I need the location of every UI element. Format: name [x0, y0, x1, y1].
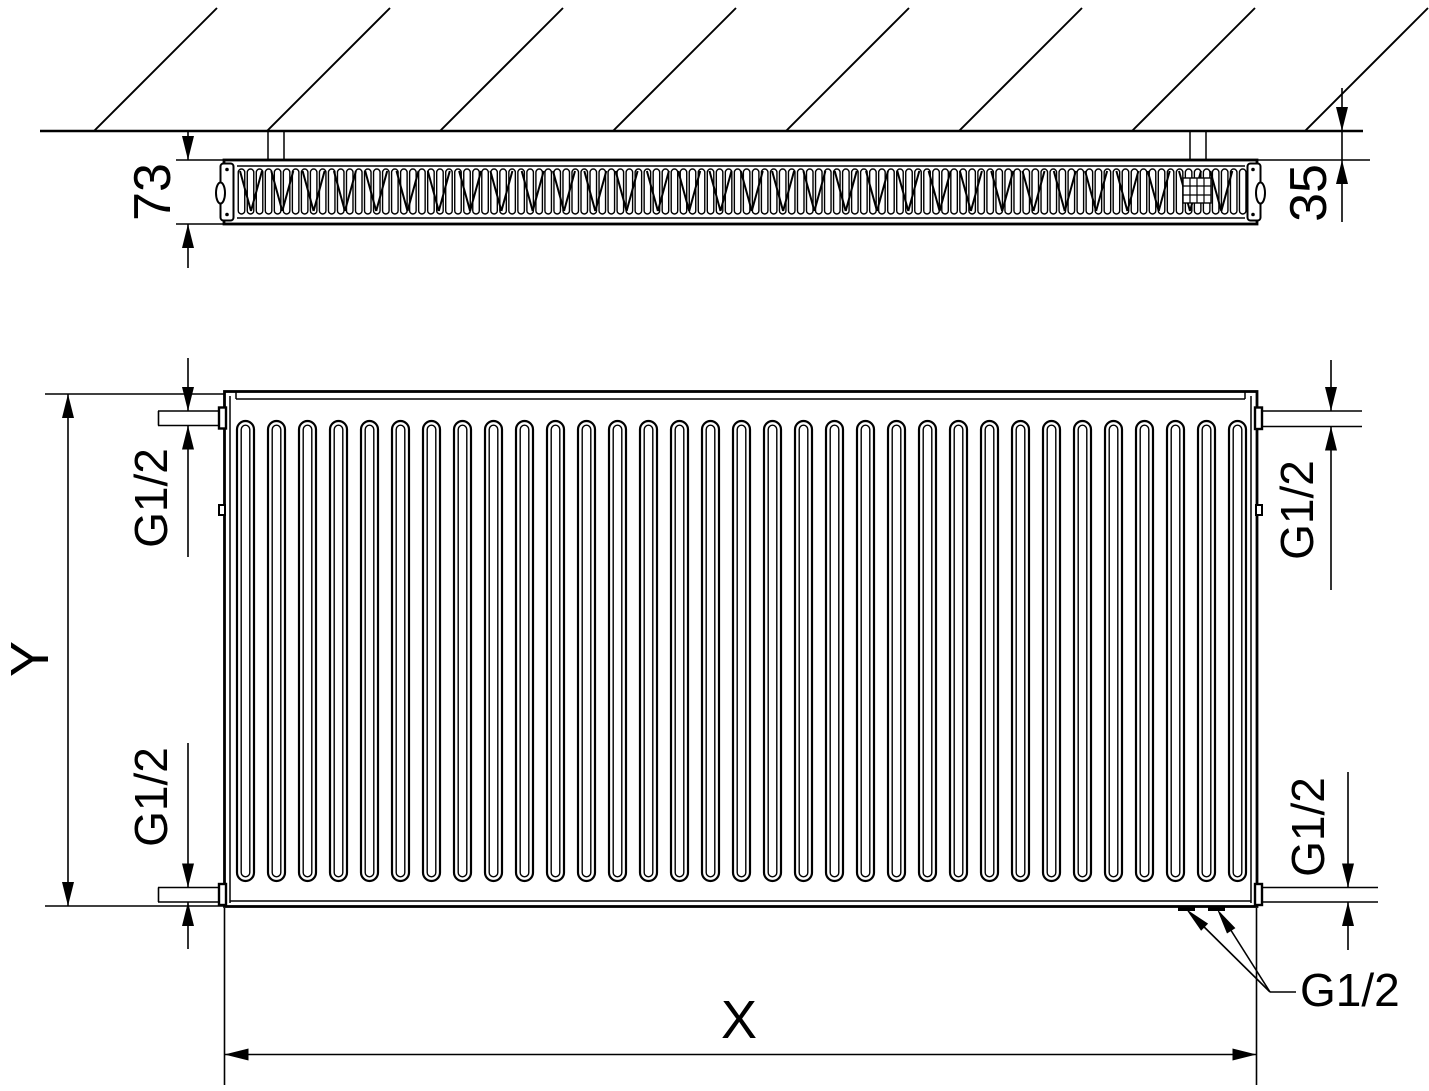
front-fin-slot [795, 421, 812, 881]
wall-bracket-left [268, 131, 284, 160]
convector-fin-loop [861, 169, 868, 214]
hatch-lines [94, 8, 1428, 131]
length-value-label: X [721, 990, 757, 1050]
convector-fin-loop [292, 169, 299, 214]
bottom-connection-stub [1178, 906, 1195, 911]
front-fin-slot [857, 421, 874, 881]
convector-fin-loop [797, 169, 804, 214]
front-fin-slot [640, 421, 657, 881]
front-fin-slot [237, 421, 254, 881]
front-fin-slot [516, 421, 533, 881]
arrow-down-icon [182, 864, 194, 888]
convector-fin-loop [825, 169, 832, 214]
hatch-line [267, 8, 390, 131]
dimension-length: X [225, 908, 1257, 1085]
front-fin-slot [1105, 421, 1122, 881]
bracket-grid [1183, 178, 1211, 203]
front-fin-slot [361, 421, 378, 881]
arrow-right-icon [1233, 1049, 1257, 1061]
thread-label: G1/2 [125, 747, 177, 847]
front-fin-slot [268, 421, 285, 881]
convector-fin-loop [356, 169, 363, 214]
convector-fin-loop [671, 169, 678, 214]
height-value-label: Y [0, 641, 60, 677]
connection-stub-bottom-right [1255, 884, 1378, 905]
front-fin-slot [1136, 421, 1153, 881]
stub-collar [219, 884, 226, 905]
hatch-line [94, 8, 217, 131]
top-view-end-cap-left [216, 164, 234, 221]
hatch-line [959, 8, 1082, 131]
dimension-thread-bottom-right: G1/2 [1282, 772, 1354, 950]
wall-clearance-value-label: 35 [1280, 164, 1338, 222]
end-cap-dot [1251, 168, 1255, 172]
convector-fin-loop [608, 169, 615, 214]
thread-callout-label: G1/2 [1300, 964, 1400, 1016]
connection-stub-top-left [158, 408, 226, 429]
convector-fin-loop [482, 169, 489, 214]
arrow-up-icon [62, 394, 74, 418]
front-fin-slot [609, 421, 626, 881]
end-cap-nub [1256, 183, 1265, 204]
front-fin-slot [1043, 421, 1060, 881]
convector-fin-loop [328, 169, 335, 214]
hatch-line [440, 8, 563, 131]
front-fin-slot [1074, 421, 1091, 881]
arrow-up-icon [182, 426, 194, 450]
convector-fin-loop [734, 169, 741, 214]
hatch-line [1132, 8, 1255, 131]
convector-fin-loop [888, 169, 895, 214]
radiator-technical-drawing: 73 35 [0, 0, 1429, 1091]
hatch-line [786, 8, 909, 131]
front-fin-slot [547, 421, 564, 881]
convector-fin-loop [545, 169, 552, 214]
front-fin-slot [1229, 421, 1246, 881]
dimension-thread-top-right: G1/2 [1271, 360, 1337, 590]
convector-fin-loop [1140, 169, 1147, 214]
end-cap-dot [225, 168, 229, 172]
front-fin-slot [671, 421, 688, 881]
front-fin-slot [764, 421, 781, 881]
front-fin-slot [299, 421, 316, 881]
front-fin-slot [485, 421, 502, 881]
top-view-end-cap-right [1248, 164, 1266, 221]
arrow-up-icon [182, 224, 194, 248]
depth-value-label: 73 [124, 163, 182, 221]
thread-label: G1/2 [125, 448, 177, 548]
front-fin-slot [919, 421, 936, 881]
front-fin-slot [702, 421, 719, 881]
hatch-line [613, 8, 736, 131]
arrow-up-icon [1325, 427, 1337, 451]
end-cap-dot [225, 213, 229, 217]
front-fin-slot [1012, 421, 1029, 881]
front-fin-slot [950, 421, 967, 881]
wall-bracket-right [1190, 131, 1206, 160]
dimension-thread-bottom-left: G1/2 [125, 743, 194, 949]
end-cap-dot [1251, 213, 1255, 217]
front-fin-slot [423, 421, 440, 881]
convector-fin-loop [1014, 169, 1021, 214]
arrow-down-icon [182, 387, 194, 411]
connection-stub-bottom-left [158, 884, 226, 905]
connection-stub-top-right [1255, 408, 1362, 430]
dimension-wall-clearance: 35 [1253, 88, 1370, 222]
dimension-thread-top-left: G1/2 [125, 358, 194, 557]
front-fin-slot [330, 421, 347, 881]
dimension-height: Y [0, 394, 224, 906]
convector-fin-loop [951, 169, 958, 214]
convector-fin-loop [419, 169, 426, 214]
arrow-down-icon [1336, 107, 1348, 131]
side-nub-left [219, 505, 225, 515]
front-fin-slot [733, 421, 750, 881]
drawing-canvas: 73 35 [0, 0, 1429, 1091]
convector-fin-loop [265, 169, 272, 214]
hatch-line [1305, 8, 1428, 131]
front-fin-slot [1167, 421, 1184, 881]
front-fin-slot [1198, 421, 1215, 881]
front-fin-slot [826, 421, 843, 881]
convector-fin-loop [1239, 169, 1246, 214]
convector-fin-loop [1077, 169, 1084, 214]
stub-collar [1255, 408, 1262, 430]
front-fin-slot [392, 421, 409, 881]
bottom-connection-stub [1208, 906, 1225, 911]
convector-fin-loop [1041, 169, 1048, 214]
front-fin-slot [981, 421, 998, 881]
bottom-connection-callout: G1/2 [1186, 909, 1400, 1016]
arrow-down-icon [1325, 387, 1337, 411]
front-fin-slot [888, 421, 905, 881]
arrow-down-icon [62, 882, 74, 906]
end-cap-nub [216, 183, 225, 204]
arrow-left-icon [225, 1049, 249, 1061]
front-fin-slot [578, 421, 595, 881]
arrow-up-icon [1342, 902, 1354, 926]
stub-collar [1255, 884, 1262, 905]
front-fin-slot [454, 421, 471, 881]
thread-label: G1/2 [1282, 777, 1334, 877]
arrow-down-icon [182, 136, 194, 160]
stub-collar [219, 408, 226, 429]
side-nub-right [1256, 505, 1262, 515]
thread-label: G1/2 [1271, 460, 1323, 560]
leader-arrow-icon [1217, 909, 1235, 934]
arrow-down-icon [1342, 864, 1354, 888]
